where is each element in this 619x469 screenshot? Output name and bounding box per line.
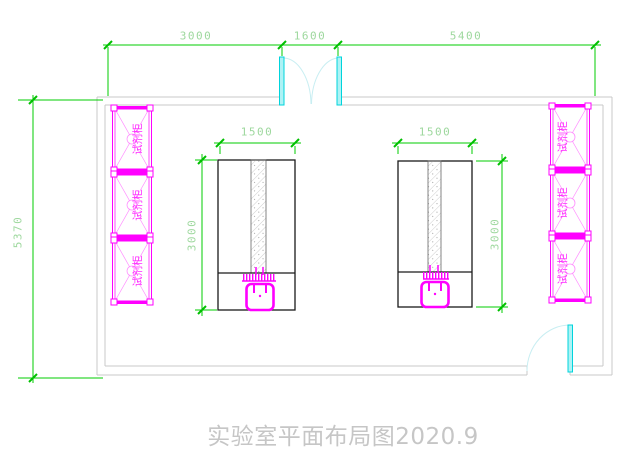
dim-label-bench-right-width: 1500 [419,127,452,138]
reagent-cabinet-column-right [549,103,591,303]
lab-bench-right [398,161,472,307]
dim-label-room-height: 5370 [13,216,24,249]
wall-lines [97,97,612,375]
cabinet-label-right-1: 试剂柜 [557,107,569,167]
dim-label-top-left: 3000 [180,31,213,42]
drawing-title: 实验室平面布局图2020.9 [207,417,478,451]
floor-plan-linework [0,0,619,469]
cabinet-label-left-2: 试剂柜 [132,175,144,235]
dim-label-bench-right-depth: 3000 [490,218,501,251]
dimension-ticks [29,41,599,382]
lab-bench-left [218,160,295,310]
dim-label-bench-left-depth: 3000 [187,219,198,252]
dim-label-top-right: 5400 [450,31,483,42]
cabinet-label-left-3: 试剂柜 [132,241,144,301]
floor-plan-canvas: 3000 1600 5400 5370 1500 3000 1500 3000 … [0,0,619,469]
double-door-top [280,57,342,105]
dim-label-top-middle: 1600 [294,31,327,42]
single-door-bottom-right [527,325,573,372]
cabinet-label-right-3: 试剂柜 [557,239,569,299]
dim-label-bench-left-width: 1500 [241,127,274,138]
cabinet-label-right-2: 试剂柜 [557,173,569,233]
cabinet-label-left-1: 试剂柜 [132,109,144,169]
